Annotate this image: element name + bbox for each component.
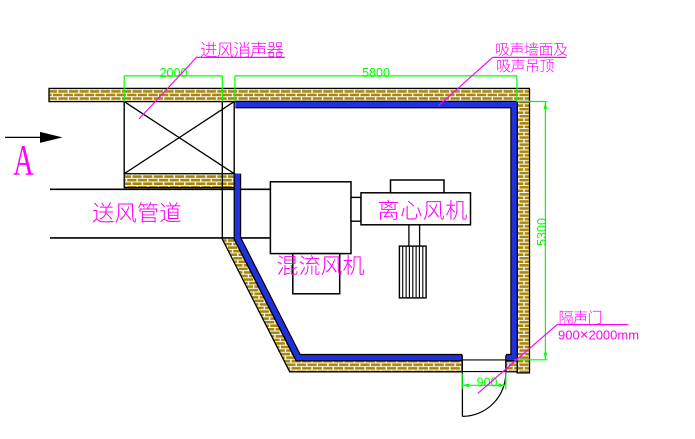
- svg-text:5300: 5300: [535, 218, 549, 246]
- svg-text:2000: 2000: [160, 66, 188, 80]
- svg-text:900×2000mm: 900×2000mm: [558, 327, 639, 344]
- svg-text:A: A: [13, 137, 34, 184]
- svg-text:900: 900: [477, 375, 498, 389]
- svg-text:5800: 5800: [362, 66, 390, 80]
